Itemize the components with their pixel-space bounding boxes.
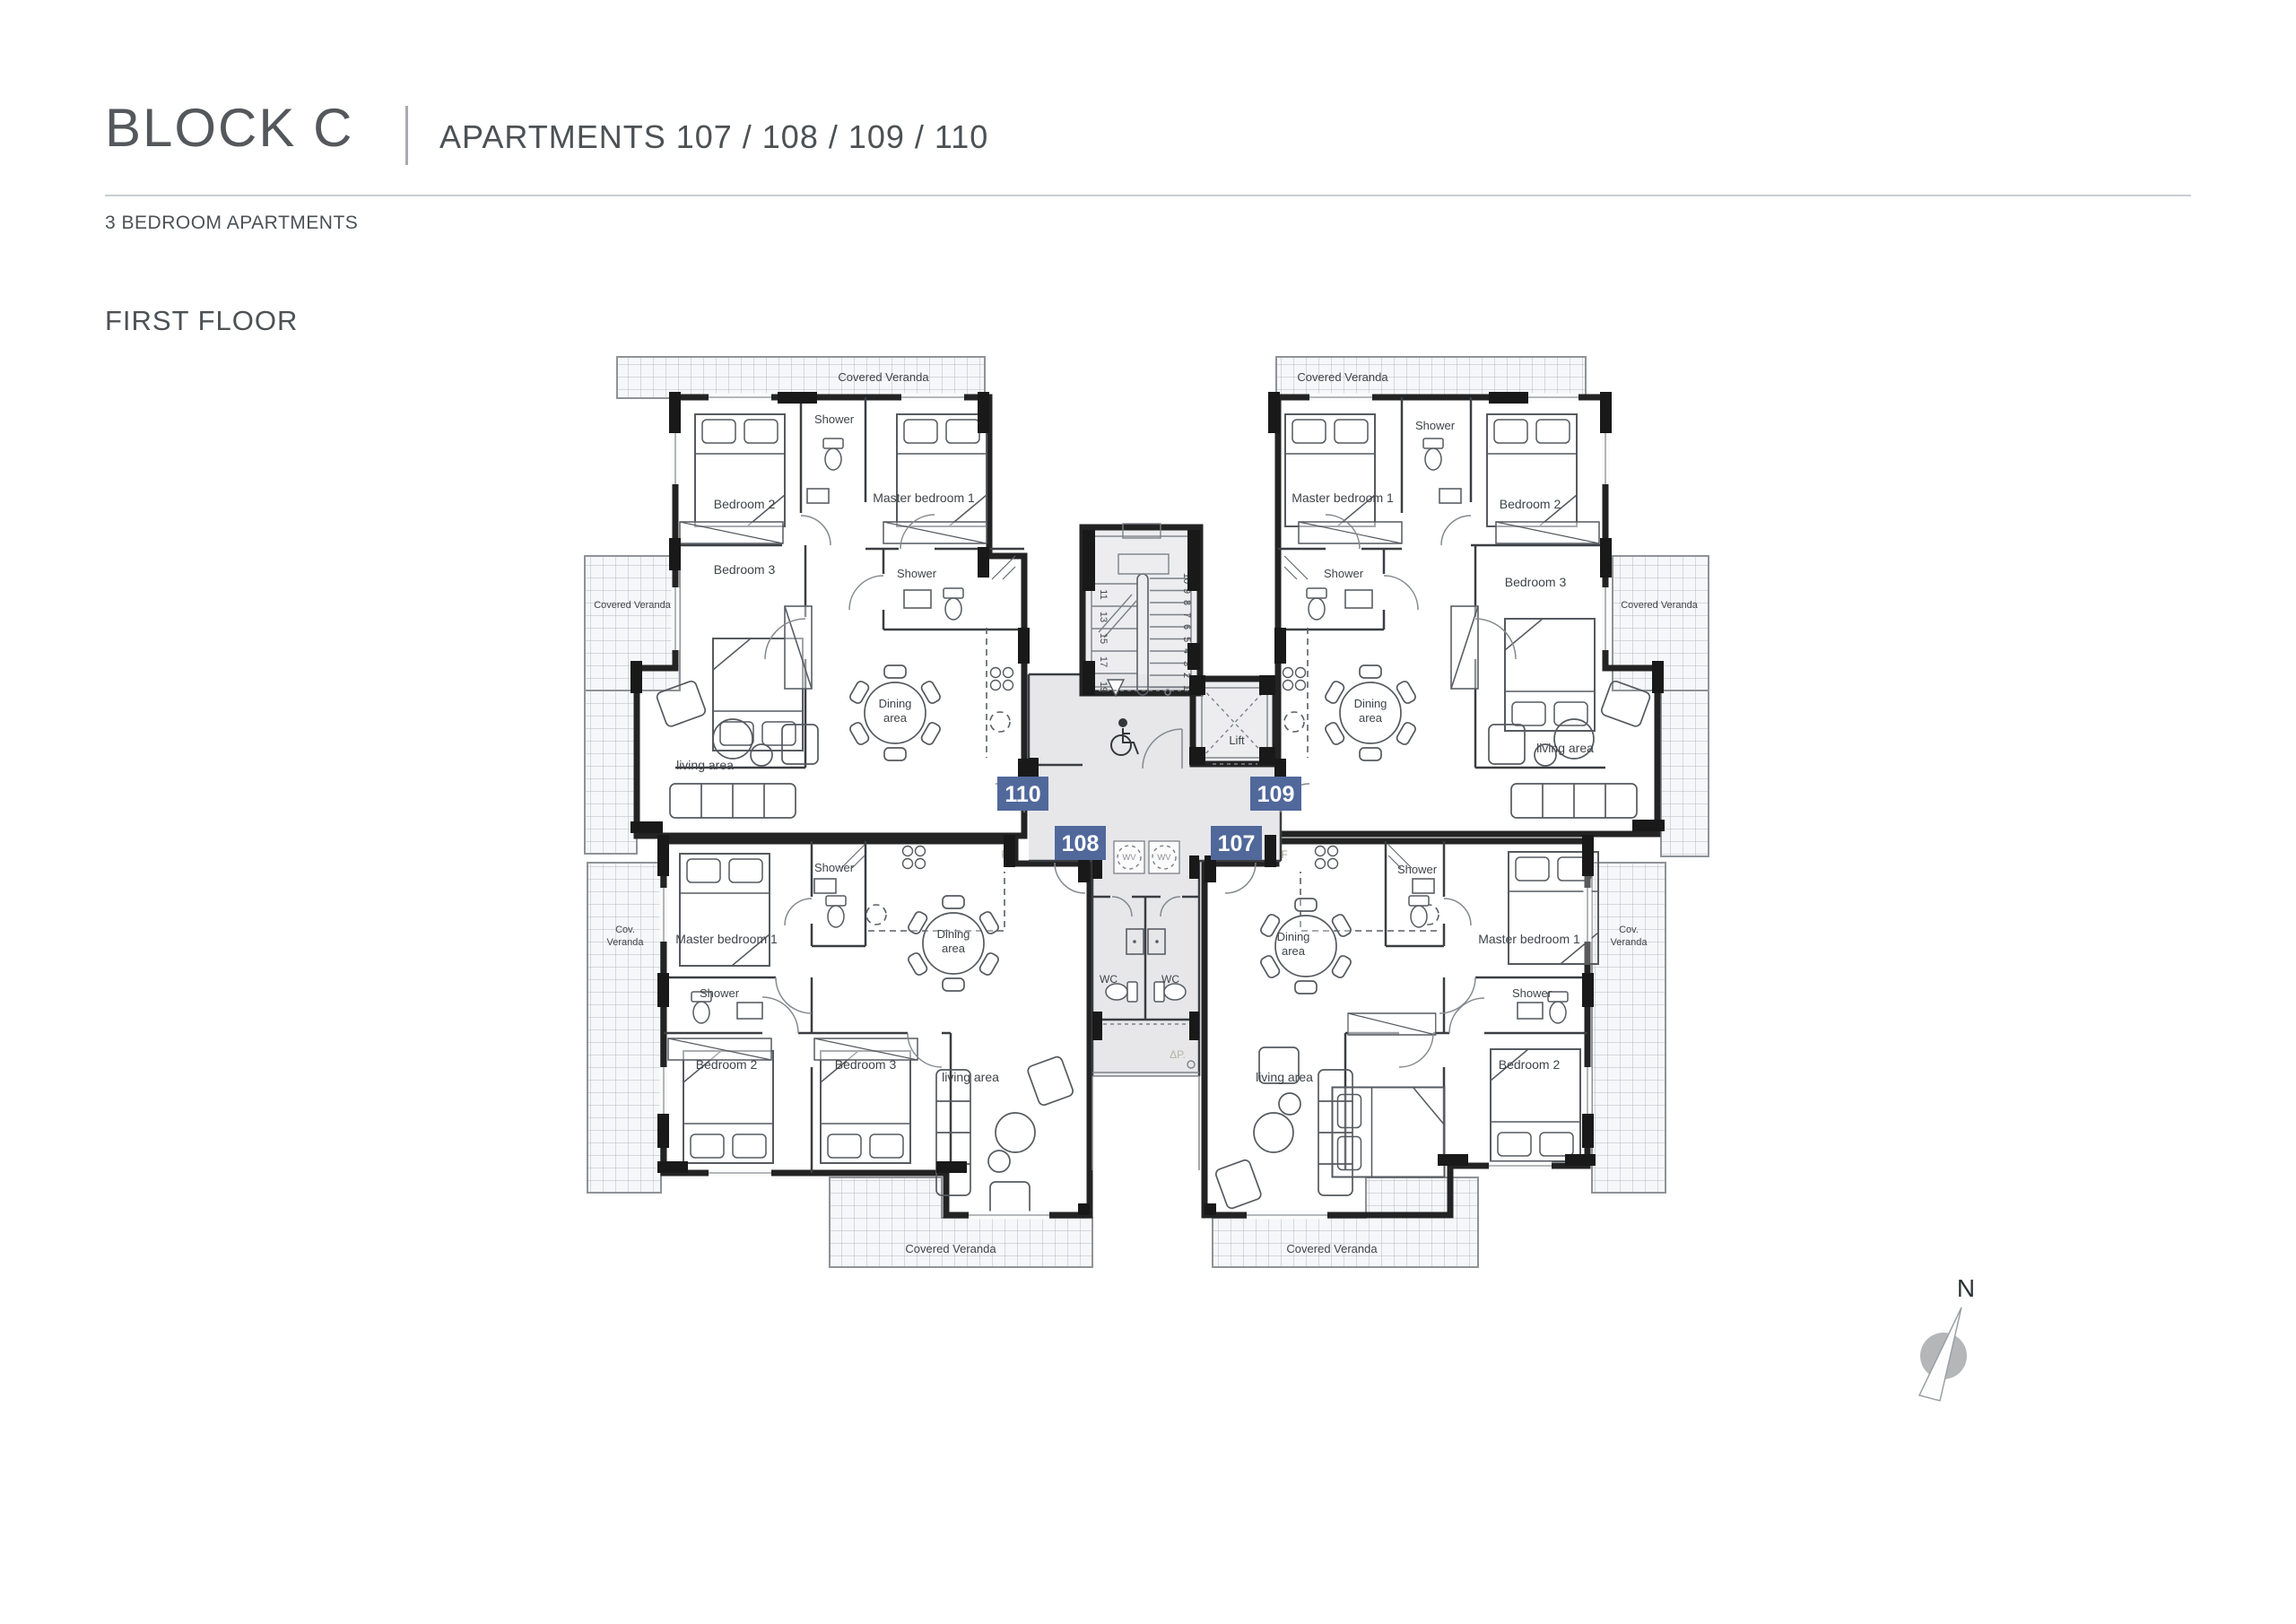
apt108-bedroom2-label: Bedroom 2 xyxy=(696,1057,758,1072)
apt108-dining-label2: area xyxy=(942,942,966,955)
apt108-shower-top-label: Shower xyxy=(814,861,855,874)
apt110-badge-label: 110 xyxy=(1004,782,1040,807)
apt108-shower-mid-label: Shower xyxy=(700,986,740,1000)
stair-number: 13 xyxy=(1098,612,1109,622)
apt107-veranda-side-label2: Veranda xyxy=(1611,937,1648,948)
apt110-shower-mid-label: Shower xyxy=(897,567,937,580)
apt109-living-label: living area xyxy=(1536,741,1594,755)
apt110-living-label: living area xyxy=(676,758,734,772)
wc-left-label: WC xyxy=(1100,973,1118,986)
stair-number: 5 xyxy=(1181,637,1192,642)
apt107-dining-label2: area xyxy=(1282,944,1306,958)
apt108-master-label: Master bedroom 1 xyxy=(675,932,778,946)
stair-number: 15 xyxy=(1098,633,1109,644)
apt108-veranda-side-label1: Cov. xyxy=(615,925,635,935)
bed-icon xyxy=(1285,414,1375,526)
apt107-living-label: living area xyxy=(1256,1070,1313,1084)
stair-number: 8 xyxy=(1181,600,1192,605)
apt107-master-label: Master bedroom 1 xyxy=(1478,932,1580,946)
apt109-shower-mid-label: Shower xyxy=(1324,567,1364,580)
apt110-dining-label2: area xyxy=(883,711,908,725)
apt107-badge-label: 107 xyxy=(1218,831,1256,856)
apt109-shower-top-label: Shower xyxy=(1415,419,1456,432)
apt107-veranda-bottom-label: Covered Veranda xyxy=(1286,1242,1378,1255)
fridge-label-107: F xyxy=(1281,848,1287,861)
bed-icon xyxy=(1505,619,1595,731)
apt110-master-label: Master bedroom 1 xyxy=(873,491,975,505)
bed-icon xyxy=(680,854,770,966)
apt110-veranda-top-label: Covered Veranda xyxy=(838,370,929,384)
apt110-veranda-side-label: Covered Veranda xyxy=(594,600,671,611)
apt107-shower-mid-label: Shower xyxy=(1512,986,1552,1000)
dp-label: ΔP. xyxy=(1170,1048,1186,1061)
apt110-bedroom2-label: Bedroom 2 xyxy=(714,497,776,511)
apt107-dining-label1: Dining xyxy=(1277,930,1310,943)
dining-table-icon xyxy=(1259,899,1352,994)
apt110-dining-label1: Dining xyxy=(879,697,912,710)
stair-number: 17 xyxy=(1098,656,1109,667)
apt109-veranda-top-label: Covered Veranda xyxy=(1297,370,1388,384)
bed-icon xyxy=(897,414,987,526)
apt109-badge-label: 109 xyxy=(1257,782,1295,807)
stair-number: 19 xyxy=(1098,682,1109,692)
apt108-living-label: living area xyxy=(942,1070,999,1084)
apt109-dining-label2: area xyxy=(1359,711,1383,725)
apt110-bedroom3-label: Bedroom 3 xyxy=(714,562,776,577)
north-compass: N xyxy=(1919,1274,1975,1401)
wv-right-label: WV xyxy=(1157,853,1171,863)
apt108-bedroom3-label: Bedroom 3 xyxy=(835,1057,897,1072)
north-label: N xyxy=(1957,1274,1975,1302)
apt109-bedroom2-label: Bedroom 2 xyxy=(1500,497,1561,511)
stair-number: 6 xyxy=(1181,624,1192,630)
apt108-veranda-side-label2: Veranda xyxy=(607,937,645,948)
wc-right-label: WC xyxy=(1161,973,1179,986)
apt109-bedroom3-label: Bedroom 3 xyxy=(1505,575,1567,589)
apt110-shower-top-label: Shower xyxy=(814,413,855,426)
apt109-veranda-side-label: Covered Veranda xyxy=(1621,600,1698,611)
apt107-veranda-side-label1: Cov. xyxy=(1619,925,1639,935)
apt108-badge-label: 108 xyxy=(1062,831,1100,856)
lift-label: Lift xyxy=(1229,734,1245,747)
apt107-shower-top-label: Shower xyxy=(1397,863,1438,876)
wv-left-label: WV xyxy=(1122,853,1136,863)
apt108-dining-label1: Dining xyxy=(937,927,970,941)
apt108-veranda-bottom-label: Covered Veranda xyxy=(905,1242,996,1255)
stair-number: 7 xyxy=(1181,612,1192,618)
floor-plan: 1 2 3 4 5 6 7 8 9 10 11 13 15 17 19 Lift… xyxy=(0,0,2296,1624)
apt109-dining-label1: Dining xyxy=(1354,697,1387,710)
apt107-bedroom2-label: Bedroom 2 xyxy=(1499,1057,1561,1072)
apt109-master-label: Master bedroom 1 xyxy=(1291,491,1394,505)
stair-number: 11 xyxy=(1098,589,1109,599)
